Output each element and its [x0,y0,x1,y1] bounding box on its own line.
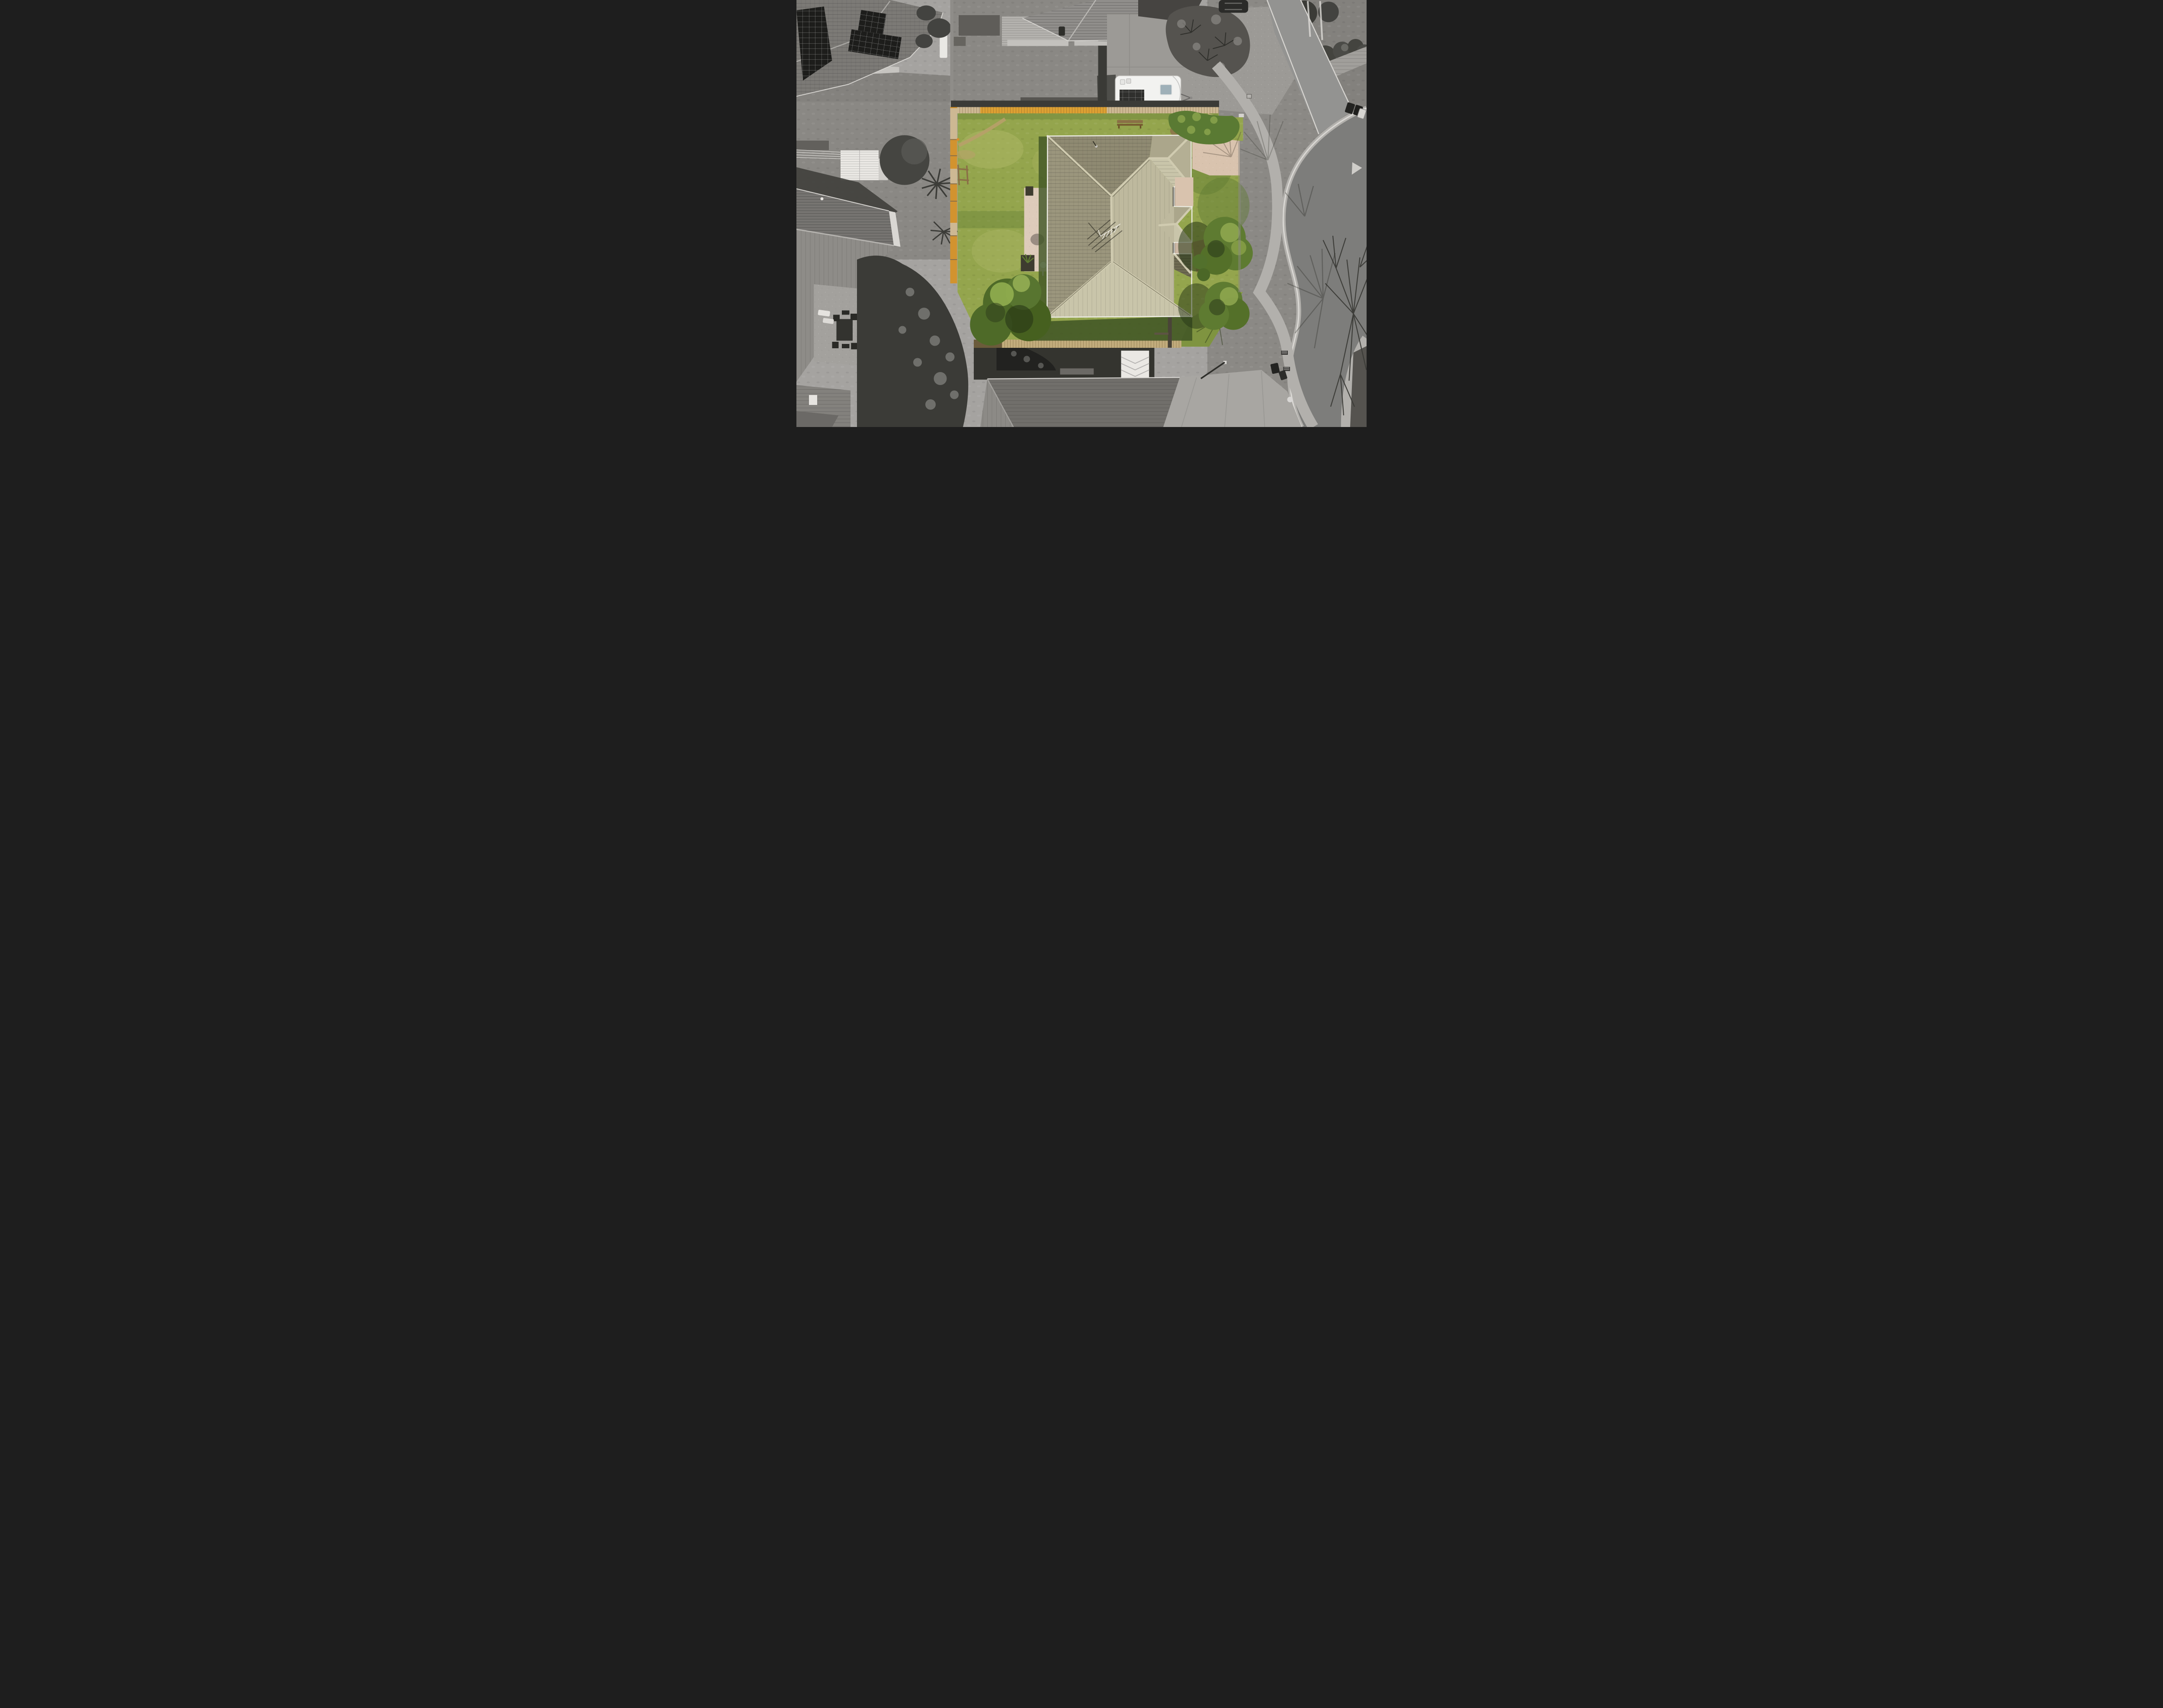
white-pad-1 [1239,114,1244,117]
garden-bench [1060,369,1094,375]
small-shrub-1 [1192,254,1207,270]
garden-bed-gray-2 [954,37,966,46]
planter-north [1026,186,1033,196]
caravan-skylight [1120,80,1125,84]
caravan-skylight-2 [1126,79,1131,83]
subject-property [950,101,1253,348]
parked-car [1219,0,1248,13]
utility-lid [1247,94,1252,98]
dirt-patch [955,150,976,159]
motorbike [1059,26,1065,35]
boundary-fence-gray [950,0,954,102]
east-shrub-a [1178,217,1253,275]
caravan-hitch [1190,96,1193,99]
leafy-tree-highlight [902,138,927,164]
fence-shadow-north [951,101,1219,108]
garage-skylight [809,395,817,405]
outdoor-table [837,319,853,341]
white-lid [1287,397,1293,402]
garden-bed-gray [959,15,1000,36]
bc-white-shed [1121,351,1149,379]
bc-roof-tiles [987,378,1180,427]
caravan-window [1160,84,1172,95]
desaturation-boundary [1238,141,1241,292]
roof-vent [821,197,824,200]
small-shrub-2 [1197,268,1210,281]
left-garden-bed [796,141,829,150]
antenna-mast [1112,228,1114,231]
deck-steps [1008,40,1069,46]
neighbor-top-center [953,0,1202,110]
orange-ball [956,138,960,141]
aerial-photo-stage [796,0,1367,427]
caravan-solar-cells [1120,90,1144,102]
aerial-photo [796,0,1367,427]
house-roof [1047,135,1192,318]
courtyard-gap-1 [1175,177,1194,206]
neighbor-bottom-center [974,345,1180,427]
bush-sunlit-top [990,283,1014,306]
